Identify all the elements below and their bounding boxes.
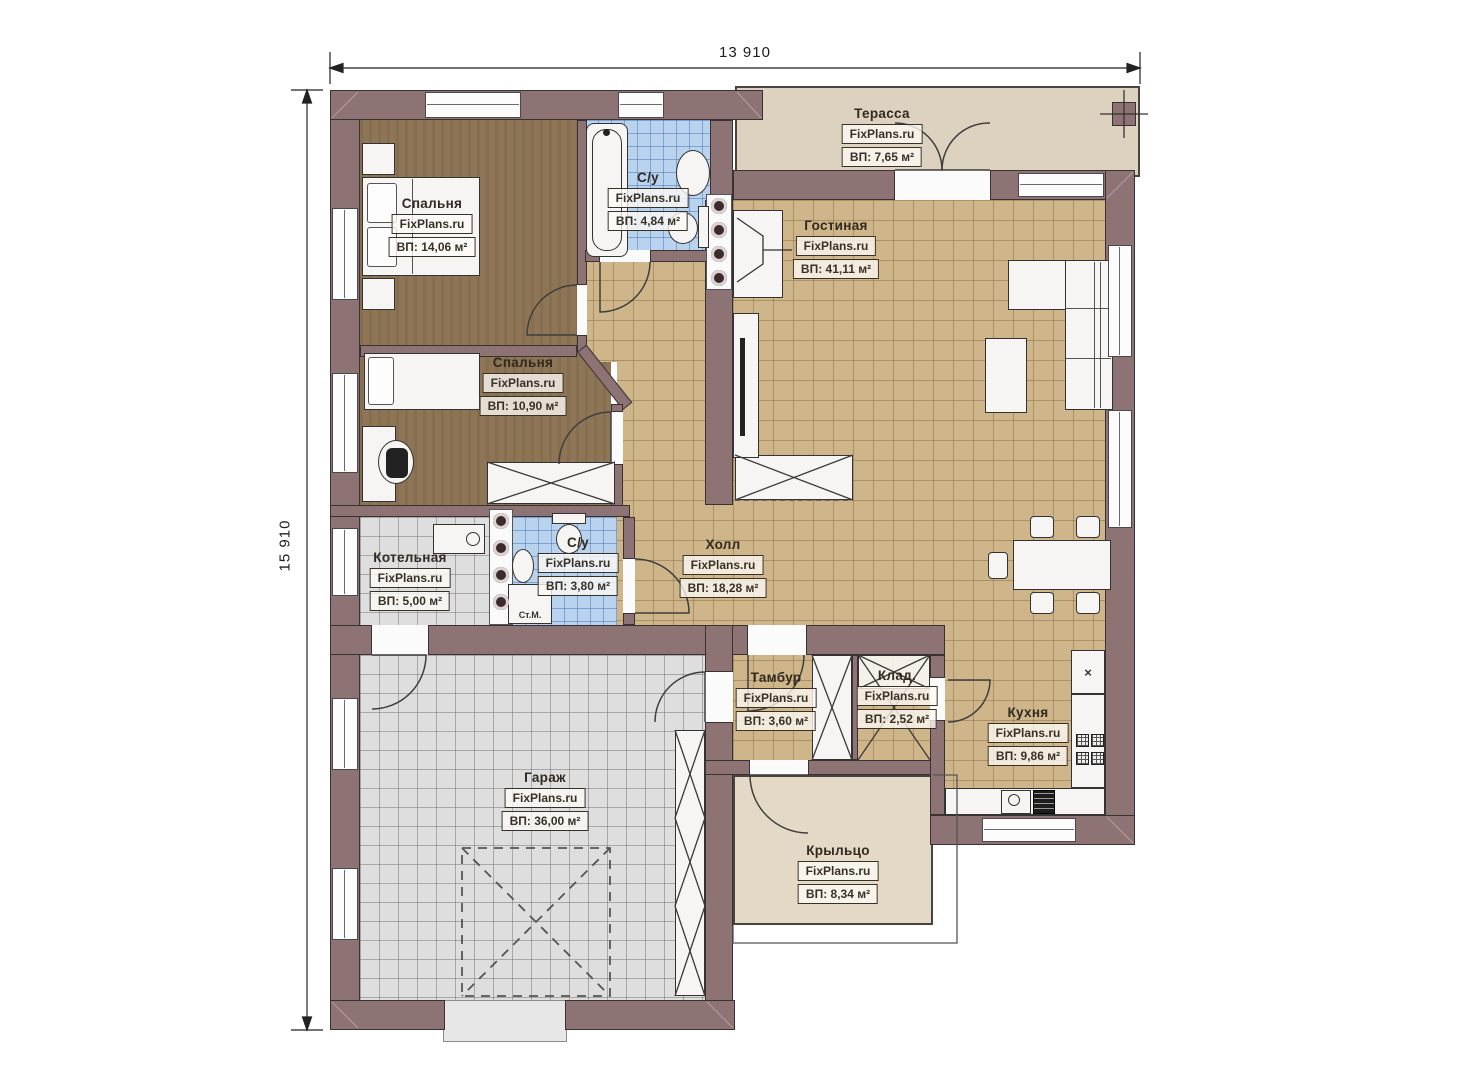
- fridge-mark: ×: [1084, 665, 1092, 680]
- room-label-terrace: Терасса FixPlans.ru ВП: 7,65 м²: [842, 106, 923, 167]
- room-label-garage: Гараж FixPlans.ru ВП: 36,00 м²: [502, 770, 589, 831]
- pipe: [493, 594, 509, 610]
- sofa-back-line: [1100, 262, 1101, 408]
- room-area: ВП: 3,60 м²: [736, 711, 816, 731]
- window: [1108, 410, 1132, 528]
- door-opening: [577, 285, 587, 335]
- window: [332, 868, 358, 940]
- chair-seat: [386, 448, 408, 478]
- wall: [565, 1000, 735, 1030]
- room-name: С/у: [637, 170, 659, 185]
- toilet-tank: [698, 206, 709, 248]
- room-brand: FixPlans.ru: [370, 568, 451, 588]
- room-name: Кухня: [1008, 705, 1049, 720]
- room-area: ВП: 3,80 м²: [538, 576, 618, 596]
- sofa-body: [1065, 260, 1113, 410]
- fireplace: [733, 210, 783, 298]
- dimension-height-label: 15 910: [277, 506, 294, 586]
- room-label-porch: Крыльцо FixPlans.ru ВП: 8,34 м²: [798, 843, 879, 904]
- room-name: Терасса: [854, 106, 910, 121]
- room-label-bathroom-1: С/у FixPlans.ru ВП: 4,84 м²: [608, 170, 689, 231]
- door-opening: [895, 170, 990, 200]
- room-name: С/у: [567, 535, 589, 550]
- dining-chair: [1030, 592, 1054, 614]
- dining-chair: [1076, 516, 1100, 538]
- terrace-floor: [735, 86, 1140, 177]
- room-brand: FixPlans.ru: [683, 555, 764, 575]
- dimension-width-label: 13 910: [690, 44, 800, 61]
- wardrobe: [487, 462, 615, 504]
- window: [425, 92, 521, 118]
- wall: [330, 1000, 445, 1030]
- sofa-cushion-line: [1066, 308, 1111, 309]
- door-opening: [748, 625, 806, 655]
- wall: [806, 625, 945, 655]
- window: [332, 528, 358, 596]
- sink-drain: [1008, 794, 1020, 806]
- room-area: ВП: 8,34 м²: [798, 884, 878, 904]
- room-label-kitchen: Кухня FixPlans.ru ВП: 9,86 м²: [988, 705, 1069, 766]
- floor-plan: Ст.М. ×: [0, 0, 1473, 1080]
- pipe: [711, 198, 727, 214]
- pipe: [493, 513, 509, 529]
- window: [618, 92, 664, 118]
- coffee-table: [985, 338, 1027, 413]
- dining-chair: [1030, 516, 1054, 538]
- wall: [710, 120, 733, 205]
- window: [1018, 173, 1104, 197]
- window: [332, 373, 358, 473]
- door-opening: [623, 559, 635, 613]
- wall: [623, 613, 635, 625]
- room-name: Гараж: [524, 770, 566, 785]
- pipe: [711, 246, 727, 262]
- room-brand: FixPlans.ru: [483, 373, 564, 393]
- room-name: Спальня: [402, 196, 462, 211]
- room-label-storage: Клад. FixPlans.ru ВП: 2,52 м²: [857, 668, 938, 729]
- wall: [330, 625, 372, 655]
- room-brand: FixPlans.ru: [505, 788, 586, 808]
- room-brand: FixPlans.ru: [538, 553, 619, 573]
- stove-burner: [1091, 734, 1104, 747]
- room-name: Клад.: [878, 668, 916, 683]
- room-area: ВП: 10,90 м²: [480, 396, 567, 416]
- room-area: ВП: 7,65 м²: [842, 147, 922, 167]
- room-area: ВП: 36,00 м²: [502, 811, 589, 831]
- room-area: ВП: 9,86 м²: [988, 746, 1068, 766]
- garage-shelving: [675, 730, 705, 996]
- washing-machine-label: Ст.М.: [519, 610, 542, 620]
- room-brand: FixPlans.ru: [857, 686, 938, 706]
- room-label-vestibule: Тамбур FixPlans.ru ВП: 3,60 м²: [736, 670, 817, 731]
- pipe: [493, 567, 509, 583]
- sink: [512, 549, 534, 583]
- room-label-bedroom-1: Спальня FixPlans.ru ВП: 14,06 м²: [389, 196, 476, 257]
- room-brand: FixPlans.ru: [796, 236, 877, 256]
- room-name: Крыльцо: [806, 843, 870, 858]
- wall: [808, 760, 945, 775]
- room-name: Холл: [705, 537, 740, 552]
- tv-bench: [733, 313, 759, 458]
- boiler-dial: [466, 532, 480, 546]
- room-brand: FixPlans.ru: [798, 861, 879, 881]
- wardrobe: [735, 455, 853, 500]
- wall: [611, 404, 623, 412]
- stove-burner: [1076, 734, 1089, 747]
- wall: [650, 250, 710, 262]
- nightstand: [362, 278, 395, 310]
- wall: [930, 720, 945, 815]
- window: [982, 818, 1076, 842]
- room-brand: FixPlans.ru: [988, 723, 1069, 743]
- room-brand: FixPlans.ru: [608, 188, 689, 208]
- closet: [812, 655, 852, 760]
- terrace-pillar: [1112, 102, 1136, 126]
- wall: [705, 625, 733, 672]
- stove-burner: [1076, 752, 1089, 765]
- wall: [705, 760, 750, 775]
- pillow: [368, 357, 394, 405]
- room-area: ВП: 5,00 м²: [370, 591, 450, 611]
- window: [332, 698, 358, 770]
- door-opening: [750, 760, 808, 775]
- room-brand: FixPlans.ru: [736, 688, 817, 708]
- room-area: ВП: 41,11 м²: [793, 259, 879, 279]
- room-brand: FixPlans.ru: [392, 214, 473, 234]
- window: [332, 208, 358, 300]
- stove-burner: [1091, 752, 1104, 765]
- room-area: ВП: 14,06 м²: [389, 237, 476, 257]
- wall: [623, 517, 635, 559]
- dining-chair: [988, 552, 1008, 579]
- wall: [733, 170, 895, 200]
- dining-table: [1013, 540, 1111, 590]
- room-area: ВП: 18,28 м²: [680, 578, 767, 598]
- pipe: [493, 540, 509, 556]
- room-label-boiler-room: Котельная FixPlans.ru ВП: 5,00 м²: [370, 550, 451, 611]
- room-label-bathroom-2: С/у FixPlans.ru ВП: 3,80 м²: [538, 535, 619, 596]
- room-name: Гостиная: [804, 218, 867, 233]
- tv: [740, 338, 745, 436]
- pipe: [711, 270, 727, 286]
- door-opening: [705, 672, 733, 722]
- faucet: [603, 129, 610, 136]
- room-name: Тамбур: [751, 670, 802, 685]
- toilet-tank: [552, 513, 586, 524]
- room-name: Котельная: [373, 550, 446, 565]
- pipe: [711, 222, 727, 238]
- dining-chair: [1076, 592, 1100, 614]
- room-area: ВП: 4,84 м²: [608, 211, 688, 231]
- wall: [428, 625, 748, 655]
- sofa-cushion-line: [1066, 358, 1111, 359]
- room-brand: FixPlans.ru: [842, 124, 923, 144]
- garage-door: [443, 1000, 567, 1042]
- sofa-back-line: [1094, 262, 1095, 408]
- door-opening: [611, 412, 623, 464]
- fridge: ×: [1071, 650, 1105, 694]
- room-area: ВП: 2,52 м²: [857, 709, 937, 729]
- door-opening: [372, 625, 428, 655]
- room-label-living-room: Гостиная FixPlans.ru ВП: 41,11 м²: [793, 218, 879, 279]
- wall: [330, 90, 763, 120]
- dishwasher: [1033, 790, 1055, 814]
- room-label-hall: Холл FixPlans.ru ВП: 18,28 м²: [680, 537, 767, 598]
- window: [1108, 245, 1132, 357]
- room-name: Спальня: [493, 355, 553, 370]
- nightstand: [362, 143, 395, 175]
- room-label-bedroom-2: Спальня FixPlans.ru ВП: 10,90 м²: [480, 355, 567, 416]
